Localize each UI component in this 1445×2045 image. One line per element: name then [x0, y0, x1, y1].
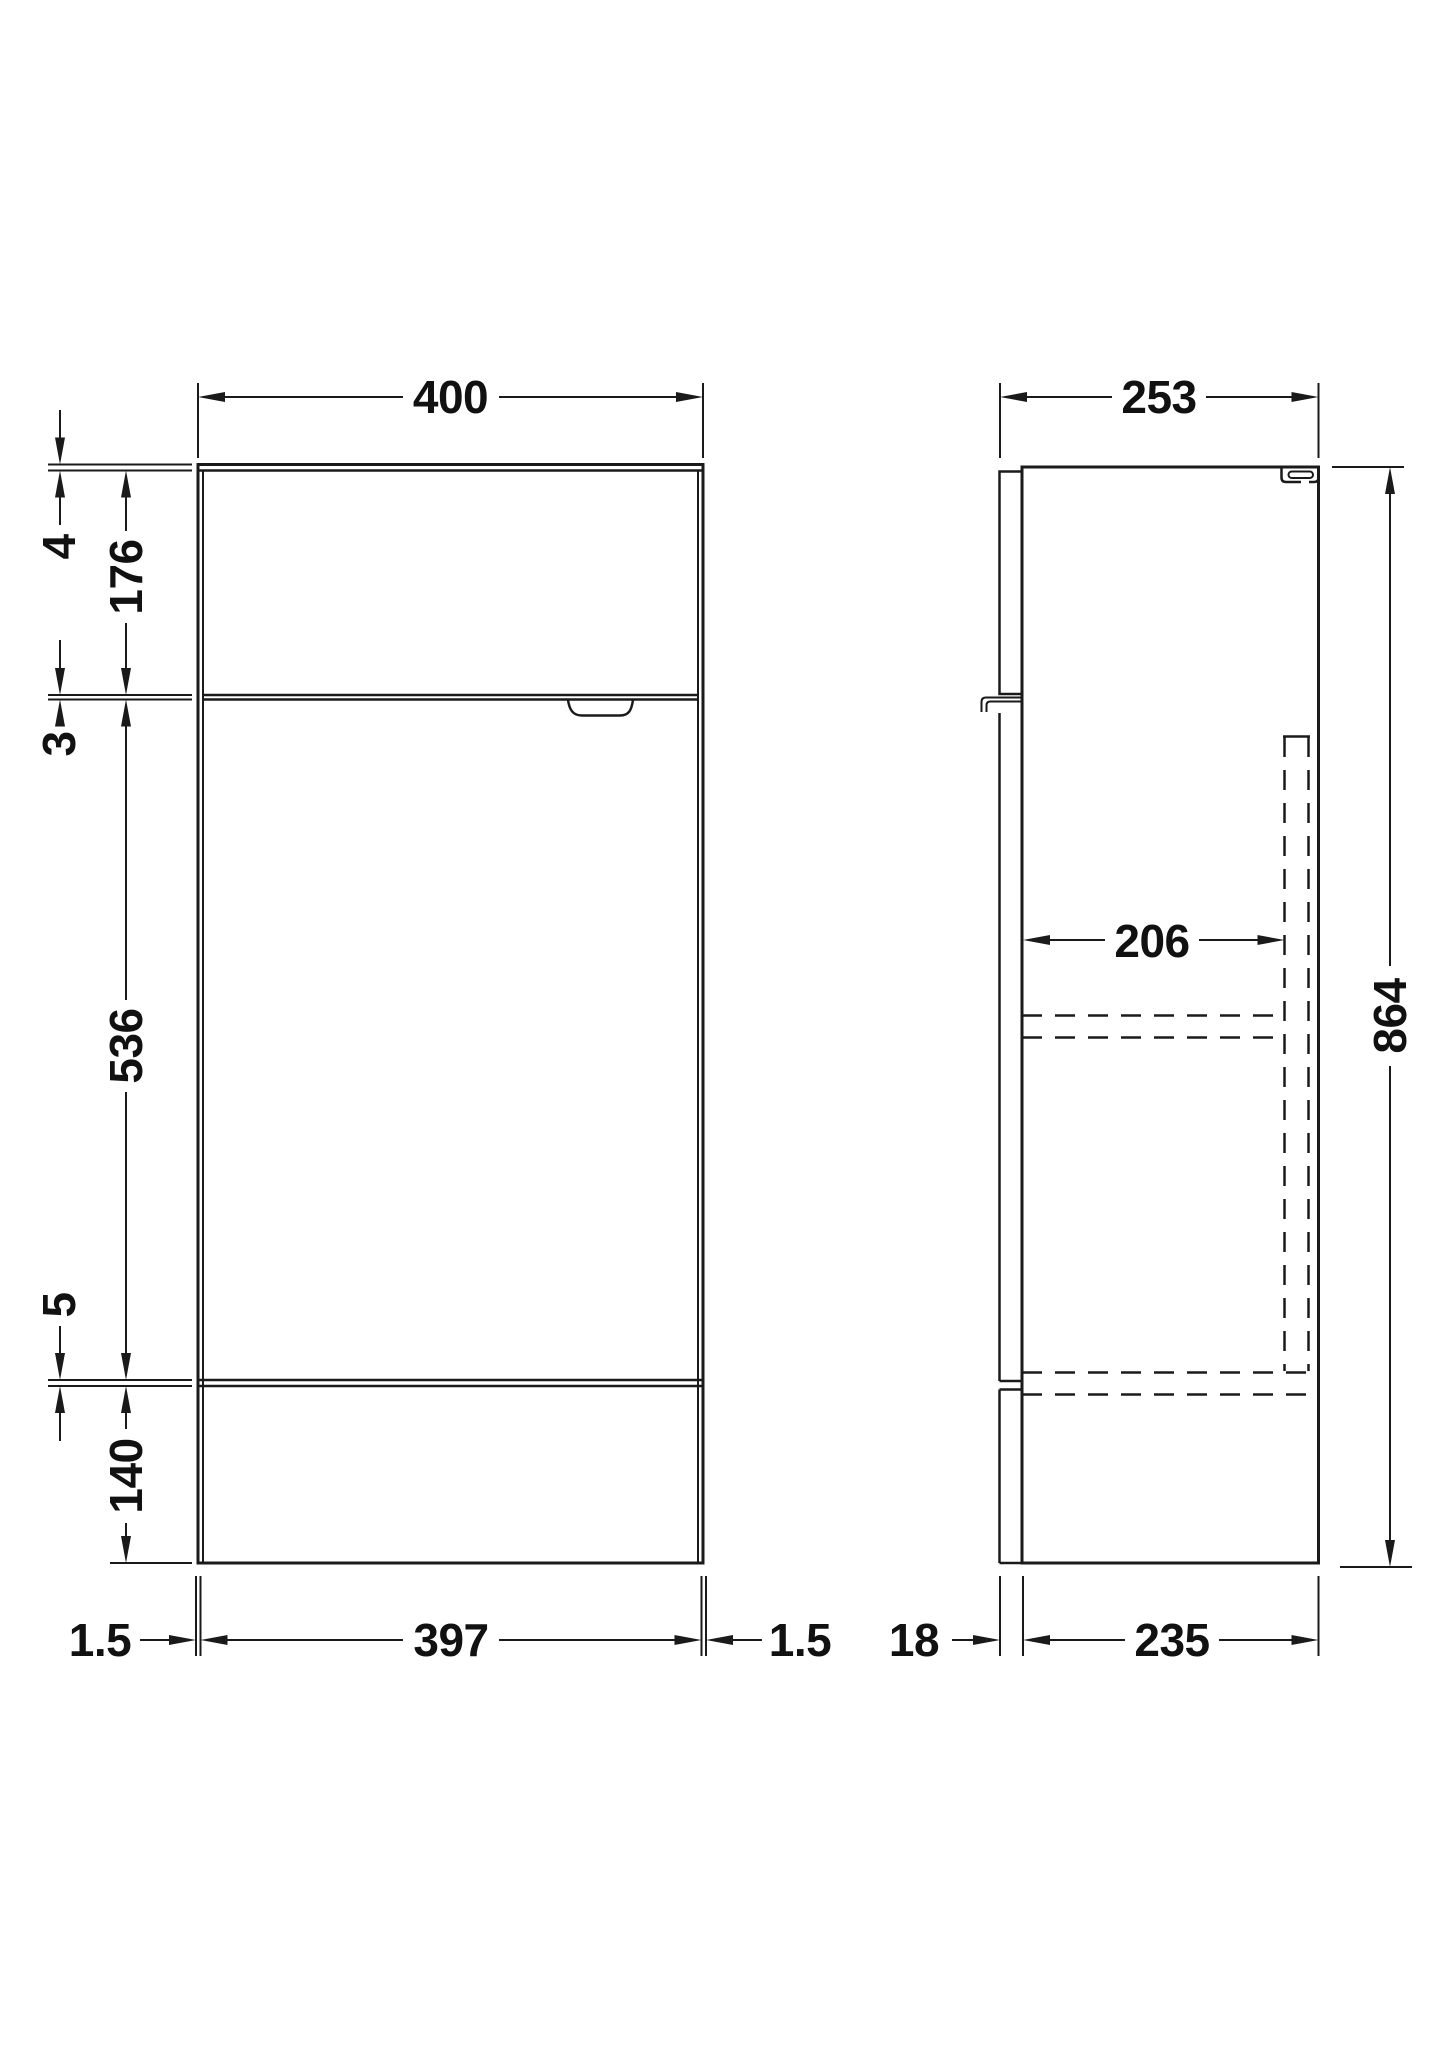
- side-pull-profile: [982, 698, 1023, 713]
- dim-plinth-height: 140: [100, 1386, 152, 1563]
- side-bottom-hidden-lines: [1022, 1373, 1317, 1395]
- arrowhead-left-icon: [1000, 392, 1027, 402]
- arrowhead-up-icon: [55, 1386, 65, 1413]
- dim-side-bottom-row: 18 235: [889, 1576, 1319, 1666]
- arrowhead-down-icon: [55, 1353, 65, 1380]
- front-outline: [198, 465, 703, 1564]
- arrowhead-down-icon: [121, 1536, 131, 1563]
- dim-door-width-label: 397: [413, 1614, 488, 1666]
- dim-gap-door-plinth-label: 5: [33, 1292, 85, 1317]
- arrowhead-down-icon: [121, 668, 131, 695]
- dim-drawer-front-height-label: 176: [100, 539, 152, 614]
- front-divider-lines: [203, 695, 698, 700]
- arrowhead-right-icon: [169, 1635, 196, 1645]
- arrowhead-down-icon: [55, 438, 65, 465]
- arrowhead-right-icon: [973, 1635, 1000, 1645]
- arrowhead-left-icon: [198, 392, 225, 402]
- dim-door-height-label: 536: [100, 1008, 152, 1083]
- side-section: [982, 467, 1319, 1563]
- dim-front-panel-thickness-label: 18: [889, 1614, 939, 1666]
- dim-overall-height: 864: [1332, 467, 1416, 1567]
- arrowhead-up-icon: [55, 700, 65, 727]
- front-plinth-recess-lines: [198, 1380, 703, 1386]
- arrowhead-up-icon: [121, 471, 131, 498]
- dim-internal-depth-label: 206: [1114, 915, 1189, 967]
- side-duct-hidden-lines: [1285, 737, 1309, 1371]
- arrowhead-up-icon: [1385, 467, 1395, 494]
- side-drawer-front-panel: [1000, 472, 1023, 695]
- technical-drawing-page: 400 4 176 3 536 5: [0, 0, 1445, 2045]
- dim-worktop-thickness: 4: [33, 410, 85, 560]
- dim-edge-gap-left-label: 1.5: [69, 1614, 131, 1666]
- arrowhead-up-icon: [121, 1386, 131, 1413]
- arrowhead-down-icon: [1385, 1540, 1395, 1567]
- arrowhead-left-icon: [201, 1635, 228, 1645]
- dim-gap-door-plinth: 5: [33, 1292, 85, 1441]
- dim-overall-width: 400: [198, 371, 703, 458]
- plinth-recess-extension-lines: [48, 1380, 192, 1386]
- worktop-extension-lines: [48, 465, 192, 471]
- arrowhead-right-icon: [676, 392, 703, 402]
- dim-worktop-thickness-label: 4: [33, 534, 85, 560]
- divider-extension-lines: [48, 695, 192, 700]
- dim-carcass-depth-label: 235: [1134, 1614, 1209, 1666]
- dim-gap-drawer-door-label: 3: [33, 731, 85, 756]
- side-wall-bracket-slot: [1289, 472, 1314, 479]
- dim-gap-drawer-door: 3: [33, 640, 85, 757]
- dim-plinth-height-label: 140: [100, 1438, 152, 1513]
- dim-overall-depth: 253: [1000, 371, 1319, 458]
- arrowhead-left-icon: [1023, 1635, 1050, 1645]
- front-elevation: [198, 465, 703, 1564]
- dim-overall-width-label: 400: [413, 371, 488, 423]
- arrowhead-left-icon: [1023, 935, 1050, 945]
- dim-overall-height-label: 864: [1364, 977, 1416, 1053]
- arrowhead-right-icon: [675, 1635, 702, 1645]
- arrowhead-down-icon: [55, 668, 65, 695]
- vanity-unit-dimension-drawing: 400 4 176 3 536 5: [0, 0, 1445, 2045]
- dim-door-height: 536: [100, 700, 152, 1381]
- arrowhead-right-icon: [1292, 1635, 1319, 1645]
- side-door-panel: [1000, 713, 1023, 1381]
- front-handle-recess: [568, 700, 633, 716]
- arrowhead-right-icon: [1292, 392, 1319, 402]
- arrowhead-left-icon: [706, 1635, 733, 1645]
- arrowhead-right-icon: [1258, 935, 1285, 945]
- side-plinth-panel: [1000, 1390, 1023, 1564]
- dim-overall-depth-label: 253: [1121, 371, 1196, 423]
- side-shelf-hidden-lines: [1022, 1016, 1285, 1038]
- arrowhead-up-icon: [121, 700, 131, 727]
- dim-drawer-front-height: 176: [100, 471, 152, 696]
- arrowhead-up-icon: [55, 471, 65, 498]
- arrowhead-down-icon: [121, 1353, 131, 1380]
- dim-internal-depth: 206: [1023, 915, 1285, 967]
- dim-edge-gap-right-label: 1.5: [769, 1614, 831, 1666]
- dim-front-bottom-row: 1.5 397 1.5: [69, 1576, 831, 1666]
